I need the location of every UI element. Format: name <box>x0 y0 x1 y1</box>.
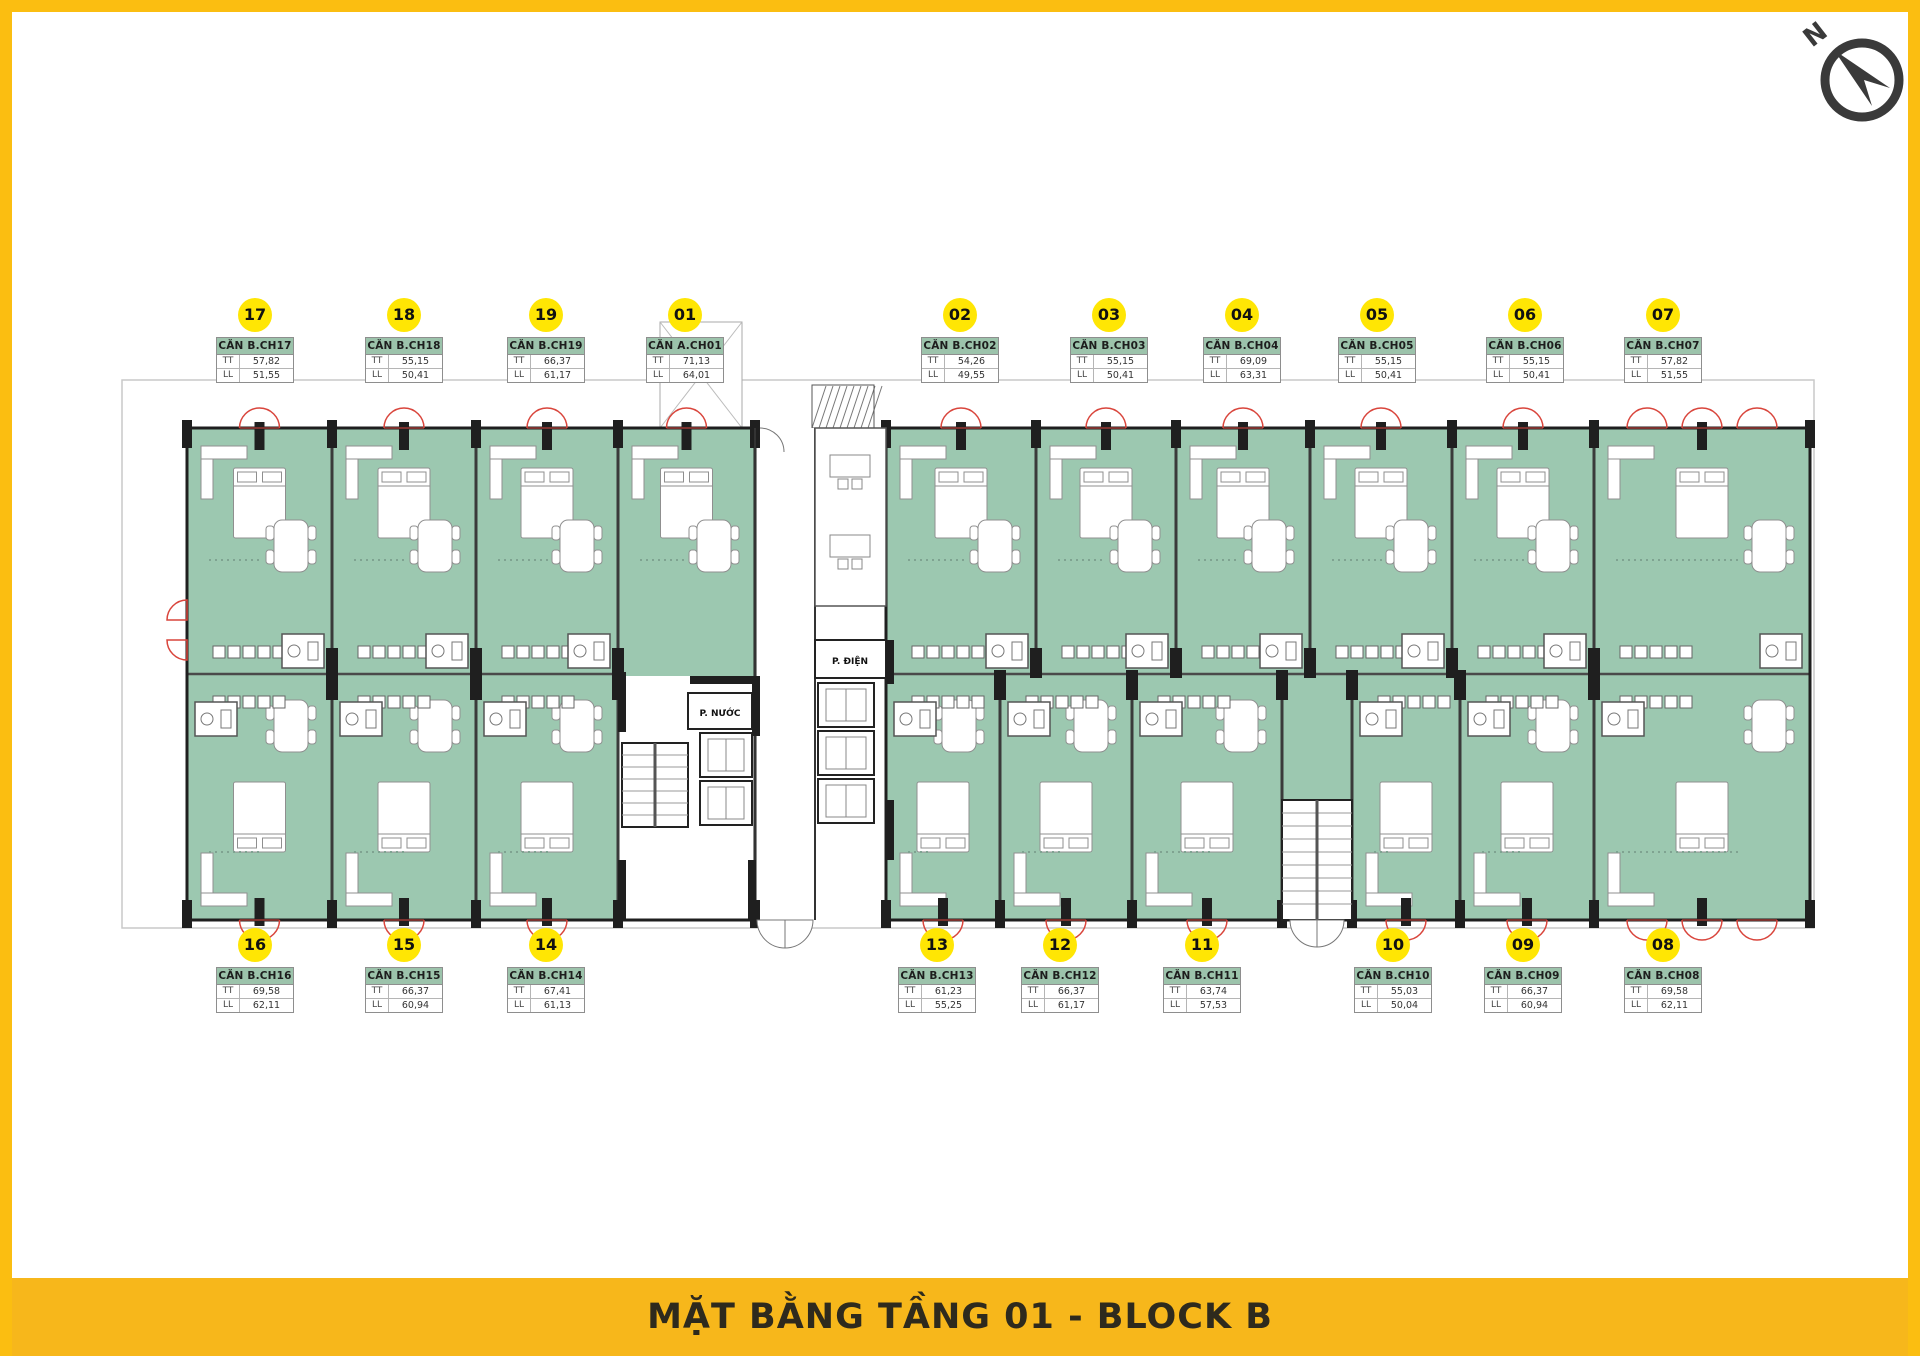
field-tt: TT <box>647 355 670 368</box>
value-ll: 61,17 <box>1045 999 1098 1012</box>
value-ll: 61,13 <box>531 999 584 1012</box>
unit-number-badge: 08 <box>1646 928 1680 962</box>
unit-name: CĂN B.CH06 <box>1487 338 1563 355</box>
unit-name: CĂN B.CH09 <box>1485 968 1561 985</box>
field-tt: TT <box>922 355 945 368</box>
unit-area-table: CĂN B.CH08TT69,58LL62,11 <box>1624 967 1702 1013</box>
unit-area-table: CĂN B.CH04TT69,09LL63,31 <box>1203 337 1281 383</box>
value-tt: 57,82 <box>1648 355 1701 368</box>
field-tt: TT <box>1071 355 1094 368</box>
field-ll: LL <box>1164 999 1187 1012</box>
field-tt: TT <box>217 355 240 368</box>
field-tt: TT <box>1204 355 1227 368</box>
value-ll: 60,94 <box>1508 999 1561 1012</box>
unit-area-table: CĂN B.CH02TT54,26LL49,55 <box>921 337 999 383</box>
value-tt: 55,15 <box>1510 355 1563 368</box>
value-tt: 67,41 <box>531 985 584 998</box>
unit-area-table: CĂN B.CH03TT55,15LL50,41 <box>1070 337 1148 383</box>
unit-name: CĂN B.CH19 <box>508 338 584 355</box>
value-tt: 55,03 <box>1378 985 1431 998</box>
page-title: MẶT BẰNG TẦNG 01 - BLOCK B <box>647 1297 1273 1337</box>
unit-name: CĂN B.CH15 <box>366 968 442 985</box>
field-tt: TT <box>1355 985 1378 998</box>
compass-north-letter: N <box>1798 16 1833 53</box>
unit-label-07: 07CĂN B.CH07TT57,82LL51,55 <box>1624 298 1702 383</box>
unit-name: CĂN B.CH11 <box>1164 968 1240 985</box>
field-ll: LL <box>1204 369 1227 382</box>
value-tt: 55,15 <box>1094 355 1147 368</box>
unit-name: CĂN B.CH07 <box>1625 338 1701 355</box>
value-tt: 69,58 <box>240 985 293 998</box>
unit-number-badge: 10 <box>1376 928 1410 962</box>
unit-label-15: 15CĂN B.CH15TT66,37LL60,94 <box>365 928 443 1013</box>
field-ll: LL <box>1339 369 1362 382</box>
unit-label-02: 02CĂN B.CH02TT54,26LL49,55 <box>921 298 999 383</box>
unit-name: CĂN B.CH13 <box>899 968 975 985</box>
unit-label-05: 05CĂN B.CH05TT55,15LL50,41 <box>1338 298 1416 383</box>
unit-number-badge: 01 <box>668 298 702 332</box>
value-tt: 57,82 <box>240 355 293 368</box>
unit-label-06: 06CĂN B.CH06TT55,15LL50,41 <box>1486 298 1564 383</box>
compass-north-icon: N <box>1798 14 1916 132</box>
field-ll: LL <box>217 369 240 382</box>
unit-name: CĂN B.CH14 <box>508 968 584 985</box>
unit-area-table: CĂN B.CH07TT57,82LL51,55 <box>1624 337 1702 383</box>
unit-number-badge: 14 <box>529 928 563 962</box>
field-tt: TT <box>1485 985 1508 998</box>
value-ll: 57,53 <box>1187 999 1240 1012</box>
unit-area-table: CĂN B.CH09TT66,37LL60,94 <box>1484 967 1562 1013</box>
value-ll: 50,41 <box>1362 369 1415 382</box>
value-ll: 50,04 <box>1378 999 1431 1012</box>
unit-area-table: CĂN B.CH05TT55,15LL50,41 <box>1338 337 1416 383</box>
unit-name: CĂN B.CH03 <box>1071 338 1147 355</box>
field-ll: LL <box>922 369 945 382</box>
value-tt: 55,15 <box>1362 355 1415 368</box>
unit-name: CĂN B.CH12 <box>1022 968 1098 985</box>
field-tt: TT <box>217 985 240 998</box>
value-ll: 61,17 <box>531 369 584 382</box>
unit-number-badge: 19 <box>529 298 563 332</box>
value-ll: 55,25 <box>922 999 975 1012</box>
value-ll: 50,41 <box>1094 369 1147 382</box>
unit-label-19: 19CĂN B.CH19TT66,37LL61,17 <box>507 298 585 383</box>
field-tt: TT <box>508 355 531 368</box>
field-ll: LL <box>1071 369 1094 382</box>
unit-area-table: CĂN B.CH17TT57,82LL51,55 <box>216 337 294 383</box>
unit-label-17: 17CĂN B.CH17TT57,82LL51,55 <box>216 298 294 383</box>
unit-label-16: 16CĂN B.CH16TT69,58LL62,11 <box>216 928 294 1013</box>
field-ll: LL <box>1625 369 1648 382</box>
unit-label-14: 14CĂN B.CH14TT67,41LL61,13 <box>507 928 585 1013</box>
field-ll: LL <box>217 999 240 1012</box>
value-tt: 66,37 <box>389 985 442 998</box>
unit-number-badge: 06 <box>1508 298 1542 332</box>
value-ll: 62,11 <box>1648 999 1701 1012</box>
unit-label-12: 12CĂN B.CH12TT66,37LL61,17 <box>1021 928 1099 1013</box>
unit-area-table: CĂN B.CH14TT67,41LL61,13 <box>507 967 585 1013</box>
field-tt: TT <box>366 355 389 368</box>
field-ll: LL <box>366 999 389 1012</box>
unit-name: CĂN B.CH16 <box>217 968 293 985</box>
value-tt: 66,37 <box>531 355 584 368</box>
value-ll: 64,01 <box>670 369 723 382</box>
unit-area-table: CĂN B.CH16TT69,58LL62,11 <box>216 967 294 1013</box>
unit-name: CĂN A.CH01 <box>647 338 723 355</box>
unit-number-badge: 03 <box>1092 298 1126 332</box>
field-ll: LL <box>366 369 389 382</box>
unit-label-09: 09CĂN B.CH09TT66,37LL60,94 <box>1484 928 1562 1013</box>
value-ll: 49,55 <box>945 369 998 382</box>
floor-plan-drawing: P. ĐIỆNP. NƯỚC <box>0 0 1920 1356</box>
unit-name: CĂN B.CH08 <box>1625 968 1701 985</box>
unit-area-table: CĂN B.CH06TT55,15LL50,41 <box>1486 337 1564 383</box>
value-ll: 62,11 <box>240 999 293 1012</box>
unit-label-11: 11CĂN B.CH11TT63,74LL57,53 <box>1163 928 1241 1013</box>
unit-label-10: 10CĂN B.CH10TT55,03LL50,04 <box>1354 928 1432 1013</box>
value-ll: 63,31 <box>1227 369 1280 382</box>
field-tt: TT <box>1625 355 1648 368</box>
field-ll: LL <box>1485 999 1508 1012</box>
field-tt: TT <box>899 985 922 998</box>
unit-area-table: CĂN B.CH12TT66,37LL61,17 <box>1021 967 1099 1013</box>
field-tt: TT <box>1625 985 1648 998</box>
unit-area-table: CĂN B.CH10TT55,03LL50,04 <box>1354 967 1432 1013</box>
value-ll: 60,94 <box>389 999 442 1012</box>
value-tt: 55,15 <box>389 355 442 368</box>
unit-number-badge: 11 <box>1185 928 1219 962</box>
value-tt: 69,58 <box>1648 985 1701 998</box>
unit-name: CĂN B.CH10 <box>1355 968 1431 985</box>
value-tt: 66,37 <box>1508 985 1561 998</box>
unit-number-badge: 05 <box>1360 298 1394 332</box>
unit-number-badge: 13 <box>920 928 954 962</box>
unit-name: CĂN B.CH05 <box>1339 338 1415 355</box>
value-tt: 69,09 <box>1227 355 1280 368</box>
value-tt: 71,13 <box>670 355 723 368</box>
unit-number-badge: 02 <box>943 298 977 332</box>
unit-area-table: CĂN B.CH18TT55,15LL50,41 <box>365 337 443 383</box>
title-banner: MẶT BẰNG TẦNG 01 - BLOCK B <box>0 1278 1920 1356</box>
unit-label-13: 13CĂN B.CH13TT61,23LL55,25 <box>898 928 976 1013</box>
field-tt: TT <box>366 985 389 998</box>
field-ll: LL <box>1625 999 1648 1012</box>
field-ll: LL <box>647 369 670 382</box>
field-ll: LL <box>1022 999 1045 1012</box>
unit-name: CĂN B.CH02 <box>922 338 998 355</box>
field-tt: TT <box>508 985 531 998</box>
value-tt: 54,26 <box>945 355 998 368</box>
unit-label-08: 08CĂN B.CH08TT69,58LL62,11 <box>1624 928 1702 1013</box>
field-tt: TT <box>1339 355 1362 368</box>
unit-name: CĂN B.CH18 <box>366 338 442 355</box>
value-tt: 66,37 <box>1045 985 1098 998</box>
field-ll: LL <box>1487 369 1510 382</box>
floor-plan-page: P. ĐIỆNP. NƯỚC 17CĂN B.CH17TT57,82LL51,5… <box>0 0 1920 1356</box>
field-tt: TT <box>1164 985 1187 998</box>
value-ll: 51,55 <box>1648 369 1701 382</box>
compass-arrow <box>1834 50 1890 106</box>
unit-area-table: CĂN A.CH01TT71,13LL64,01 <box>646 337 724 383</box>
unit-number-badge: 07 <box>1646 298 1680 332</box>
value-ll: 50,41 <box>1510 369 1563 382</box>
water-room-label: P. NƯỚC <box>699 707 740 719</box>
value-tt: 63,74 <box>1187 985 1240 998</box>
field-tt: TT <box>1487 355 1510 368</box>
unit-area-table: CĂN B.CH19TT66,37LL61,17 <box>507 337 585 383</box>
value-ll: 50,41 <box>389 369 442 382</box>
unit-number-badge: 16 <box>238 928 272 962</box>
unit-label-18: 18CĂN B.CH18TT55,15LL50,41 <box>365 298 443 383</box>
field-ll: LL <box>1355 999 1378 1012</box>
field-ll: LL <box>899 999 922 1012</box>
unit-number-badge: 15 <box>387 928 421 962</box>
unit-number-badge: 09 <box>1506 928 1540 962</box>
unit-label-01: 01CĂN A.CH01TT71,13LL64,01 <box>646 298 724 383</box>
unit-area-table: CĂN B.CH13TT61,23LL55,25 <box>898 967 976 1013</box>
unit-number-badge: 17 <box>238 298 272 332</box>
unit-label-04: 04CĂN B.CH04TT69,09LL63,31 <box>1203 298 1281 383</box>
unit-number-badge: 12 <box>1043 928 1077 962</box>
unit-area-table: CĂN B.CH11TT63,74LL57,53 <box>1163 967 1241 1013</box>
field-ll: LL <box>508 999 531 1012</box>
unit-number-badge: 18 <box>387 298 421 332</box>
unit-label-03: 03CĂN B.CH03TT55,15LL50,41 <box>1070 298 1148 383</box>
field-ll: LL <box>508 369 531 382</box>
unit-number-badge: 04 <box>1225 298 1259 332</box>
value-tt: 61,23 <box>922 985 975 998</box>
unit-name: CĂN B.CH17 <box>217 338 293 355</box>
unit-area-table: CĂN B.CH15TT66,37LL60,94 <box>365 967 443 1013</box>
value-ll: 51,55 <box>240 369 293 382</box>
electrical-room-label: P. ĐIỆN <box>832 656 868 667</box>
field-tt: TT <box>1022 985 1045 998</box>
unit-name: CĂN B.CH04 <box>1204 338 1280 355</box>
